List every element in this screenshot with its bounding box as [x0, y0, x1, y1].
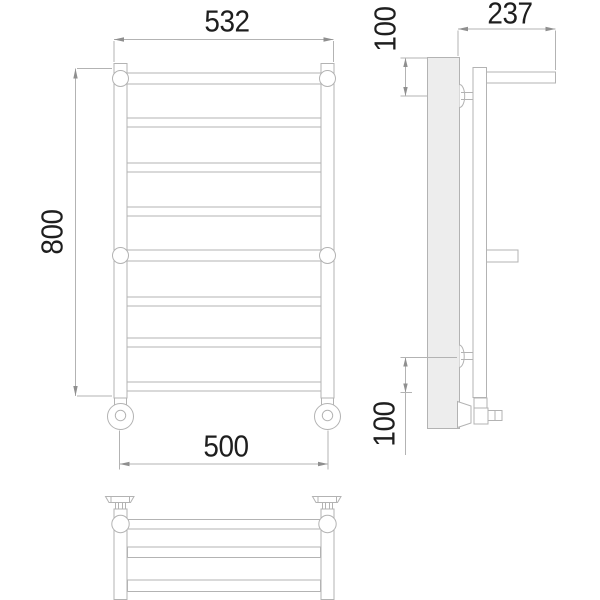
front-rung	[127, 297, 321, 306]
dim-arrow-right	[318, 462, 328, 466]
dim-532	[114, 37, 334, 62]
front-rung	[127, 163, 321, 172]
dim-arrow-down	[403, 384, 407, 393]
side-middle-rung	[487, 250, 519, 262]
dim-label-top-offset: 100	[370, 6, 401, 51]
dim-label-depth: 237	[487, 0, 532, 29]
front-middle-bar	[121, 250, 328, 261]
front-left-post	[114, 64, 127, 399]
dim-arrow-right	[546, 27, 556, 31]
dim-label-top-width: 532	[204, 6, 249, 37]
dim-arrow-left	[114, 37, 124, 41]
dim-label-height: 800	[37, 209, 68, 254]
plan-bar	[128, 580, 321, 592]
bottom-view	[106, 497, 342, 600]
dim-arrow-up	[403, 358, 407, 367]
front-right-foot	[315, 398, 341, 430]
front-top-bar	[121, 73, 328, 84]
bracket-ball	[112, 515, 129, 532]
dim-arrow-left	[120, 462, 130, 466]
dim-237	[458, 27, 556, 70]
drawing-canvas: 532 800 500 237 100 100	[0, 0, 600, 600]
front-rung	[127, 382, 321, 391]
dim-arrow-down	[403, 87, 407, 96]
foot-pipe	[322, 410, 332, 420]
top-bracket-flange	[460, 85, 465, 108]
dim-label-bottom-offset: 100	[369, 401, 400, 446]
dim-100-top	[401, 58, 428, 96]
foot-pipe	[115, 410, 125, 420]
valve-wall-fitting	[458, 402, 472, 428]
side-post	[473, 68, 487, 398]
bracket-circle	[113, 71, 129, 87]
bracket-ball	[319, 515, 336, 532]
bottom-bracket-flange	[460, 345, 465, 368]
bracket-circle	[320, 71, 336, 87]
front-left-foot	[108, 398, 134, 430]
bracket-circle	[113, 248, 129, 264]
dim-arrow-down	[73, 386, 77, 396]
bracket-circle	[320, 248, 336, 264]
bracket-stem	[116, 503, 126, 510]
dim-arrow-right	[324, 37, 334, 41]
front-right-post	[321, 64, 334, 399]
front-rung	[127, 338, 321, 347]
valve-collar	[474, 398, 487, 408]
dim-arrow-left	[458, 27, 468, 31]
front-view	[108, 64, 341, 430]
wall-plate	[428, 58, 460, 429]
side-top-bar	[487, 72, 556, 83]
front-rung	[127, 118, 321, 127]
dim-arrow-up	[73, 69, 77, 79]
dim-label-bottom-width: 500	[203, 431, 248, 462]
side-view	[428, 58, 556, 429]
plan-bar	[128, 547, 321, 558]
valve-body	[474, 408, 488, 424]
dim-arrow-up	[403, 58, 407, 67]
plan-bar	[128, 520, 321, 530]
valve-assembly	[458, 398, 503, 428]
front-rung	[127, 207, 321, 216]
technical-drawing	[0, 0, 600, 600]
bracket-stem	[323, 503, 333, 510]
dim-800	[73, 69, 112, 397]
